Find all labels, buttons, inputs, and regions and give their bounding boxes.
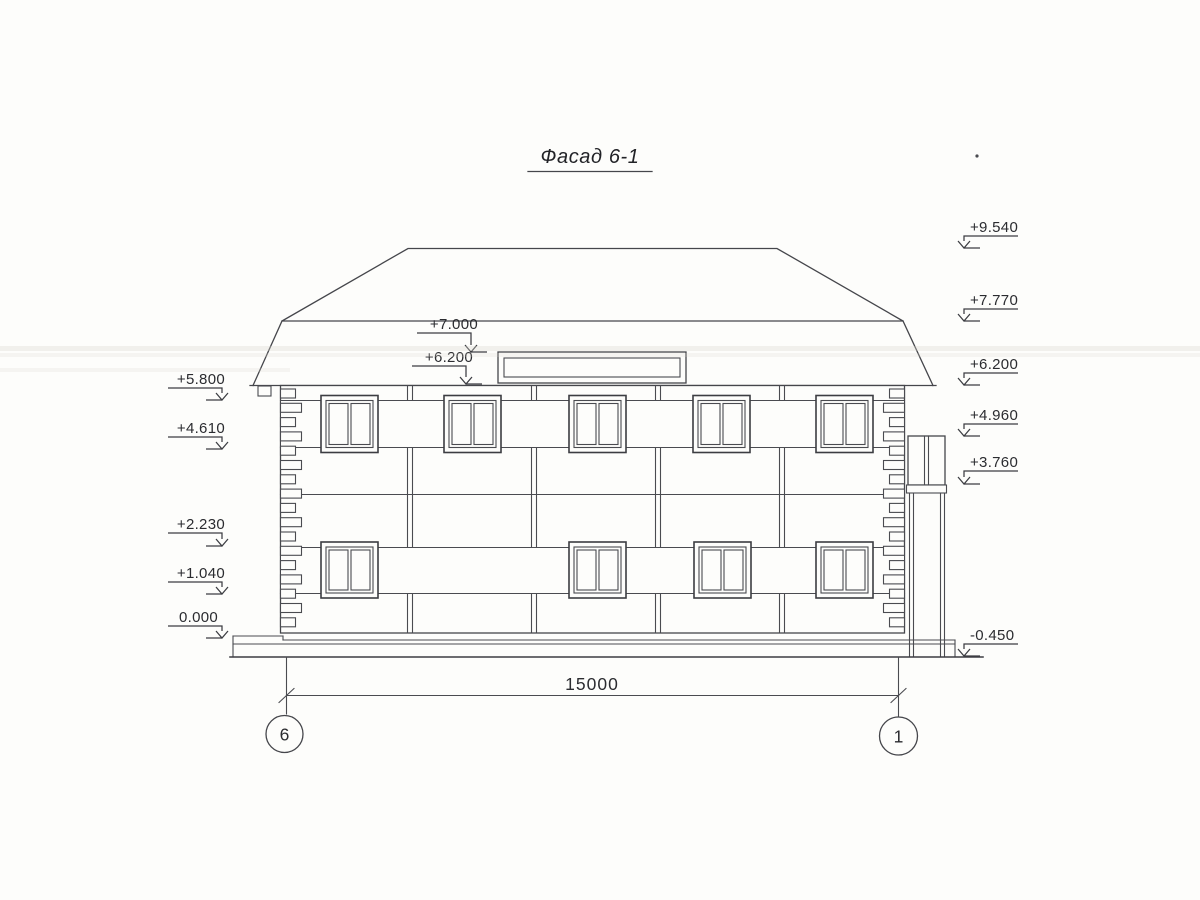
window: [694, 542, 751, 598]
elevation-value: -0.450: [970, 627, 1014, 644]
elevation-value: +9.540: [970, 219, 1018, 236]
facade-drawing-sheet: Фасад 6-1: [0, 0, 1200, 900]
elevation-value: +4.960: [970, 407, 1018, 424]
elevation-value: +7.000: [430, 316, 478, 333]
elevation-value: +3.760: [970, 454, 1018, 471]
wall: [281, 386, 905, 634]
elevation-value: +6.200: [970, 356, 1018, 373]
scan-streak: [0, 353, 1200, 357]
axis-label-left: 6: [280, 725, 290, 745]
elevation-value: +6.200: [425, 349, 473, 366]
eave-return-tab: [258, 386, 271, 396]
dimension-value: 15000: [565, 674, 619, 694]
scan-streak: [0, 346, 1200, 351]
elevation-value: +5.800: [177, 371, 225, 388]
elevation-value: +7.770: [970, 292, 1018, 309]
elevation-value: 0.000: [179, 609, 218, 626]
facade-drawing-canvas: Фасад 6-1: [0, 0, 1200, 900]
elevation-value: +4.610: [177, 420, 225, 437]
ink-dot: [975, 154, 978, 157]
axis-bubble-right: 1: [880, 717, 918, 755]
window: [569, 396, 626, 453]
window: [321, 396, 378, 453]
window: [321, 542, 378, 598]
scan-streak: [0, 368, 290, 372]
window: [693, 396, 750, 453]
axis-label-right: 1: [894, 727, 904, 747]
drawing-title: Фасад 6-1: [540, 146, 639, 168]
elevation-value: +2.230: [177, 516, 225, 533]
vent-box: [908, 436, 945, 485]
window: [444, 396, 501, 453]
elevation-value: +1.040: [177, 565, 225, 582]
vent-box-sill: [907, 485, 947, 493]
axis-bubble-left: 6: [266, 716, 303, 753]
window: [816, 396, 873, 453]
window: [816, 542, 873, 598]
window: [569, 542, 626, 598]
